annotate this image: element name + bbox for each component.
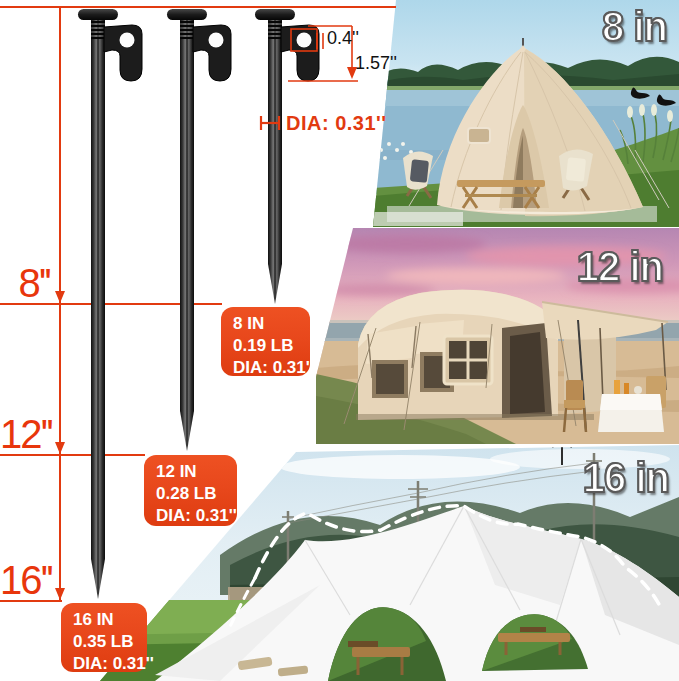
spec-weight: 0.19 LB — [233, 335, 302, 357]
length-marker-8: 8'' — [0, 263, 50, 303]
spec-size: 8 IN — [233, 313, 302, 335]
stake-8in — [255, 9, 319, 304]
stake-diagram — [0, 0, 679, 681]
product-infographic: 8 in — [0, 0, 679, 681]
stake-hook — [281, 25, 319, 81]
stake-hook — [104, 25, 142, 81]
hook-height-label: 1.57'' — [355, 53, 397, 74]
spec-box-12in: 12 IN 0.28 LB DIA: 0.31'' — [144, 455, 237, 526]
spec-diameter: DIA: 0.31'' — [73, 653, 139, 675]
stake-12in — [167, 9, 231, 451]
spec-weight: 0.35 LB — [73, 631, 139, 653]
spec-size: 12 IN — [156, 461, 229, 483]
spec-box-8in: 8 IN 0.19 LB DIA: 0.31'' — [221, 307, 310, 376]
length-marker-16: 16'' — [0, 560, 50, 600]
length-marker-12: 12'' — [0, 414, 50, 454]
hook-width-label: 0.4'' — [327, 28, 359, 49]
shaft-diameter-label: DIA: 0.31'' — [286, 112, 387, 135]
spec-box-16in: 16 IN 0.35 LB DIA: 0.31'' — [61, 603, 147, 672]
spec-weight: 0.28 LB — [156, 483, 229, 505]
spec-diameter: DIA: 0.31'' — [156, 505, 229, 527]
stake-hook — [193, 25, 231, 81]
spec-diameter: DIA: 0.31'' — [233, 357, 302, 379]
spec-size: 16 IN — [73, 609, 139, 631]
